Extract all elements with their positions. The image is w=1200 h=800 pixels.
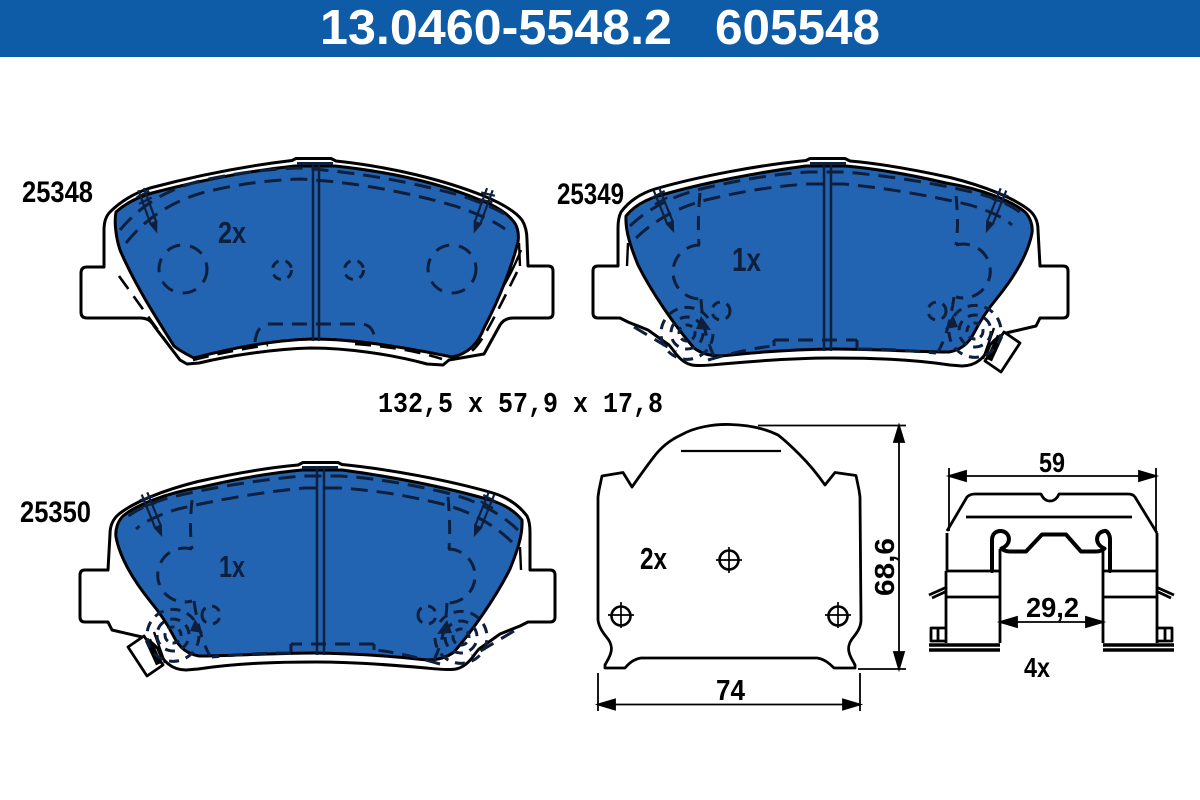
svg-text:132,5 x 57,9 x 17,8: 132,5 x 57,9 x 17,8 (378, 388, 663, 421)
svg-text:74: 74 (716, 675, 745, 707)
svg-text:4x: 4x (1024, 652, 1050, 683)
svg-text:605548: 605548 (715, 1, 880, 55)
svg-text:25348: 25348 (22, 176, 93, 209)
svg-text:25350: 25350 (20, 496, 91, 529)
svg-text:1x: 1x (732, 241, 762, 278)
svg-text:2x: 2x (218, 215, 247, 250)
svg-text:25349: 25349 (557, 178, 624, 211)
svg-text:13.0460-5548.2: 13.0460-5548.2 (320, 1, 672, 55)
svg-text:68,6: 68,6 (869, 538, 900, 596)
svg-text:1x: 1x (219, 549, 246, 584)
svg-text:59: 59 (1039, 447, 1065, 478)
svg-text:29,2: 29,2 (1026, 592, 1079, 623)
svg-text:2x: 2x (640, 541, 668, 576)
